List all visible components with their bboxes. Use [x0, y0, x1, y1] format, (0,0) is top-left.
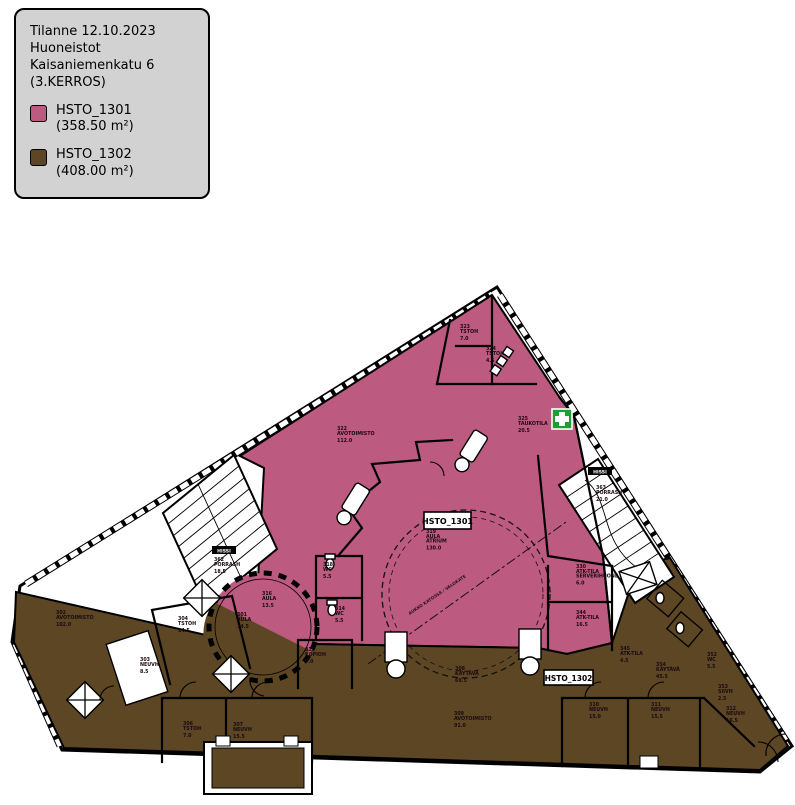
first-aid-icon	[552, 409, 572, 429]
column-1	[385, 632, 407, 678]
legend-item-1301: HSTO_1301 (358.50 m²)	[30, 103, 194, 137]
unit-tag-1301: HSTO_1301	[422, 512, 473, 529]
legend-panel: Tilanne 12.10.2023 Huoneistot Kaisanieme…	[14, 8, 210, 199]
svg-text:HSTO_1301: HSTO_1301	[422, 517, 473, 526]
legend-title-line: Tilanne 12.10.2023	[30, 24, 194, 41]
floor-plan-page: HISSI HISSI AUKKO KAT	[0, 0, 795, 805]
svg-text:HSTO_1302: HSTO_1302	[545, 674, 593, 683]
legend-title-line: (3.KERROS)	[30, 75, 194, 92]
legend-item-label: HSTO_1301 (358.50 m²)	[56, 103, 180, 137]
elevator-left-label: HISSI	[217, 549, 231, 555]
unit-tag-1302: HSTO_1302	[544, 670, 593, 685]
column-2	[519, 629, 541, 675]
bottom-door-gap	[640, 756, 658, 768]
unit-1302-swatch	[30, 149, 47, 166]
legend-title-line: Kaisaniemenkatu 6	[30, 58, 194, 75]
elevator-right-label: HISSI	[593, 470, 607, 476]
legend-title: Tilanne 12.10.2023 Huoneistot Kaisanieme…	[30, 24, 194, 92]
legend-item-label: HSTO_1302 (408.00 m²)	[56, 147, 180, 181]
legend-item-1302: HSTO_1302 (408.00 m²)	[30, 147, 194, 181]
unit-1301-swatch	[30, 105, 47, 122]
legend-title-line: Huoneistot	[30, 41, 194, 58]
